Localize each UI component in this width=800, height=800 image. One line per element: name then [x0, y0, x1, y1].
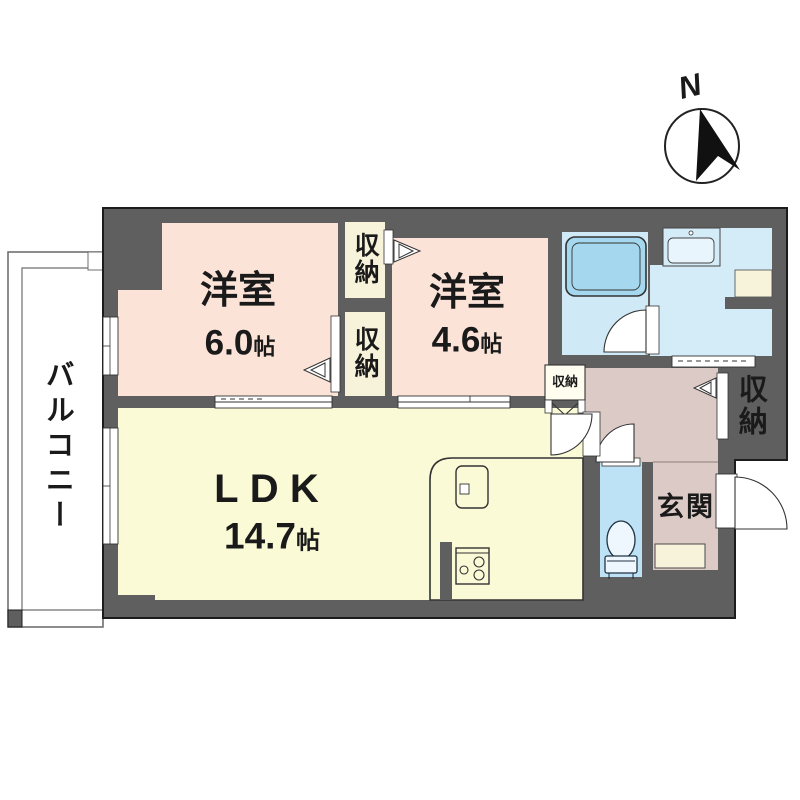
entrance-door-swing [735, 477, 787, 529]
kitchen-wall-stub [440, 542, 452, 600]
ldk-size-unit: 帖 [296, 528, 320, 555]
sliding-door-bedroom46 [398, 396, 510, 408]
closet-hallway-small-label: 収納 [552, 375, 578, 389]
wall-under-corner-storage [725, 297, 772, 309]
bathtub [566, 237, 646, 296]
kitchen-stove [456, 548, 489, 584]
washroom-corner-storage [735, 270, 772, 297]
ldk-size-value: 14.7 [224, 516, 296, 557]
toilet-fixture [605, 521, 637, 579]
bathroom-door-gap [646, 306, 659, 354]
closet-top-door [384, 230, 393, 264]
kitchen-sink [456, 466, 488, 508]
bedroom6-title: 洋室 [200, 272, 276, 312]
ldk-title: LDK [214, 468, 330, 510]
closet-top-label: 収納 [352, 232, 378, 286]
closet-bottom-label: 収納 [352, 326, 378, 380]
wash-basin [663, 228, 720, 266]
balcony-label: バルコニー [42, 360, 72, 535]
floor-plan-drawing [0, 0, 800, 800]
bedroom46-title: 洋室 [429, 274, 505, 314]
ldk-size: 14.7帖 [224, 518, 320, 557]
bedroom46-size-value: 4.6 [432, 321, 481, 360]
shoe-cabinet [655, 544, 705, 568]
genkan-label: 玄関 [657, 493, 715, 521]
closet-entrance-label: 収納 [735, 374, 765, 438]
closet-bottom-door [331, 316, 340, 392]
room-bedroom-4-6 [392, 238, 548, 396]
floor-plan-page: N バルコニー 洋室 6.0帖 洋室 4.6帖 LDK 14.7帖 玄関 収納 … [0, 0, 800, 800]
sliding-door-bedroom6 [215, 396, 332, 408]
compass [665, 109, 740, 183]
entrance-door-gap [716, 474, 737, 528]
window-bedroom6 [103, 317, 118, 375]
bedroom6-size-value: 6.0 [205, 324, 254, 363]
bedroom46-size: 4.6帖 [432, 323, 503, 360]
bedroom6-size-unit: 帖 [253, 335, 275, 360]
bedroom6-size: 6.0帖 [205, 326, 276, 363]
window-ldk [103, 428, 118, 544]
kitchen-counter [430, 458, 583, 600]
bedroom46-size-unit: 帖 [480, 332, 502, 357]
sliding-door-washroom [672, 356, 755, 367]
closet-entrance-door [717, 373, 728, 439]
